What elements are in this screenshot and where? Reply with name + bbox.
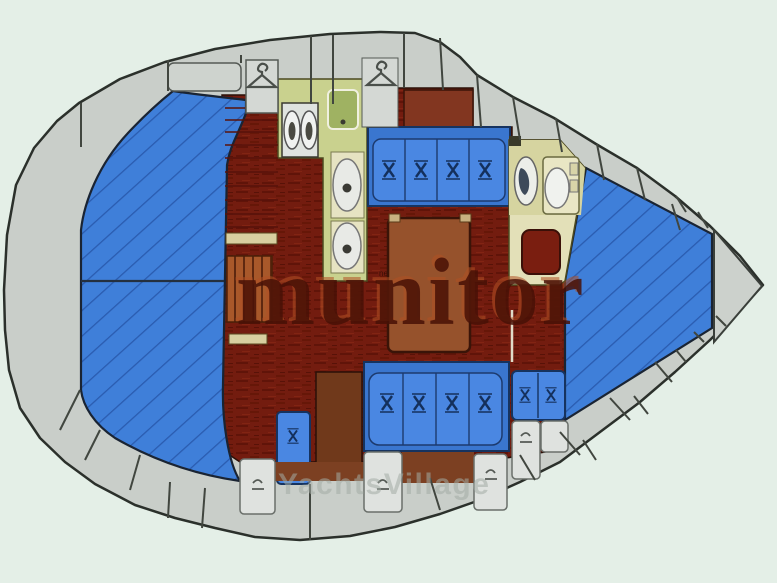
svg-text:YachtsVillage: YachtsVillage — [278, 468, 490, 501]
svg-text:munitor: munitor — [236, 239, 586, 345]
